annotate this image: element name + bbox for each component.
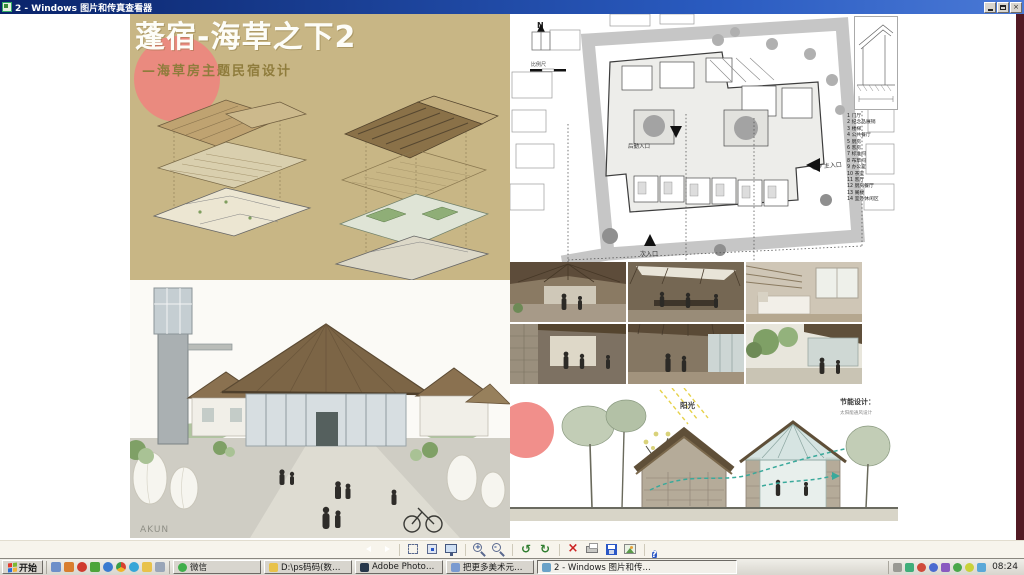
rotate-clockwise-button[interactable]: ↻ <box>538 542 553 557</box>
toolbar-separator <box>644 544 645 556</box>
media-player-icon[interactable] <box>64 562 74 572</box>
slideshow-button[interactable] <box>444 542 459 557</box>
desktop: 2 - Windows 图片和传真查看器 × 蓬宿-海草之下2 —海草房主题民宿… <box>0 0 1024 575</box>
taskbar-task-folder[interactable]: D:\ps码码(数学)\学生... <box>264 560 352 574</box>
qq-icon[interactable] <box>77 562 87 572</box>
document-icon <box>451 563 460 572</box>
taskbar-task-photoshop[interactable]: Adobe Photoshop <box>355 560 443 574</box>
image-viewer-icon <box>542 563 551 572</box>
previous-image-button[interactable] <box>359 542 374 557</box>
edit-button[interactable] <box>623 542 638 557</box>
notes-icon[interactable] <box>155 562 165 572</box>
minimize-button[interactable] <box>984 2 996 13</box>
viewer-toolbar: + - ↺ ↻ × ? <box>0 540 1024 558</box>
printer-icon[interactable] <box>893 563 902 572</box>
viewer-canvas: 蓬宿-海草之下2 —海草房主题民宿设计 <box>0 14 1024 540</box>
taskbar-clock[interactable]: 08:24 <box>989 562 1018 572</box>
save-button[interactable] <box>604 542 619 557</box>
taskbar-task-wechat[interactable]: 微信 <box>173 560 261 574</box>
taskbar-task-image-viewer[interactable]: 2 - Windows 图片和传... <box>537 560 737 574</box>
corridor-render <box>628 324 744 384</box>
zoom-out-button[interactable]: - <box>491 542 506 557</box>
browser-icon[interactable] <box>103 562 113 572</box>
delete-button[interactable]: × <box>566 542 581 557</box>
interior-render-3 <box>510 324 626 384</box>
window-titlebar[interactable]: 2 - Windows 图片和传真查看器 × <box>0 0 1024 14</box>
volume-icon[interactable] <box>953 563 962 572</box>
energy-elevation: 阳光 节能设计： 太阳能通风设计 <box>510 388 898 538</box>
toolbar-separator <box>399 544 400 556</box>
bedroom-render <box>746 262 862 322</box>
interior-render-1 <box>510 262 626 322</box>
axonometric-diagrams <box>130 84 510 280</box>
app-icon <box>2 2 12 12</box>
energy-title: 节能设计： <box>840 397 875 406</box>
legend-item: 14 室外休闲区 <box>847 197 897 203</box>
poster-left-panel: 蓬宿-海草之下2 —海草房主题民宿设计 <box>130 14 510 538</box>
courtyard-render <box>746 324 862 384</box>
restore-button[interactable] <box>997 2 1009 13</box>
poster-right-panel: 主入口 次入口 后勤入口 N 比例尺 <box>510 14 898 538</box>
render-watermark: AKUN <box>140 525 169 535</box>
poster-title: 蓬宿-海草之下2 <box>135 14 356 56</box>
window-title: 2 - Windows 图片和传真查看器 <box>15 1 152 14</box>
entrance-secondary-label: 次入口 <box>640 250 658 258</box>
interior-render-2 <box>628 262 744 322</box>
taskbar: 开始 微信 D:\ps码码(数学)\学生... Adobe P <box>0 558 1024 575</box>
sun-label: 阳光 <box>680 400 695 410</box>
toolbar-separator <box>465 544 466 556</box>
entrance-service-label: 后勤入口 <box>628 142 650 150</box>
photoshop-icon <box>360 563 369 572</box>
image-edge-strip <box>1016 14 1024 540</box>
system-tray: 08:24 <box>888 561 1022 574</box>
chrome-icon[interactable] <box>116 562 126 572</box>
folder-icon[interactable] <box>142 562 152 572</box>
print-button[interactable] <box>585 542 600 557</box>
start-label: 开始 <box>19 561 37 574</box>
im-tray-icon[interactable] <box>941 563 950 572</box>
poster-subtitle: —海草房主题民宿设计 <box>142 60 292 79</box>
zoom-in-button[interactable]: + <box>472 542 487 557</box>
network-icon[interactable] <box>917 563 926 572</box>
start-button[interactable]: 开始 <box>2 560 43 574</box>
show-desktop-icon[interactable] <box>51 562 61 572</box>
qq-tray-icon[interactable] <box>929 563 938 572</box>
site-plan: 主入口 次入口 后勤入口 N 比例尺 <box>510 14 898 262</box>
windows-logo-icon <box>8 562 17 572</box>
section-detail-drawing <box>854 16 898 110</box>
perspective-render: AKUN <box>130 280 510 538</box>
scale-label: 比例尺 <box>531 61 546 68</box>
safely-remove-icon[interactable] <box>905 563 914 572</box>
antivirus-icon[interactable] <box>965 563 974 572</box>
help-button[interactable]: ? <box>651 542 666 557</box>
poster-image: 蓬宿-海草之下2 —海草房主题民宿设计 <box>130 14 898 538</box>
actual-size-button[interactable] <box>425 542 440 557</box>
skype-icon[interactable] <box>129 562 139 572</box>
msn-icon[interactable] <box>90 562 100 572</box>
toolbar-separator <box>512 544 513 556</box>
plan-legend: 1 门厅 2 纪念品展销 3 楼梯 4 公共餐厅 5 厨房 6 客房 7 标准间… <box>847 114 897 204</box>
taskbar-tasks: 微信 D:\ps码码(数学)\学生... Adobe Photoshop 把更多… <box>173 560 885 574</box>
energy-subtitle: 太阳能通风设计 <box>840 409 873 416</box>
folder-icon <box>269 563 278 572</box>
render-photo-grid <box>510 262 864 386</box>
taskbar-task-document[interactable]: 把更多美术元素(自动... <box>446 560 534 574</box>
quick-launch-bar <box>46 561 170 574</box>
wechat-icon <box>178 563 187 572</box>
toolbar-separator <box>559 544 560 556</box>
close-button[interactable]: × <box>1010 2 1022 13</box>
entrance-main-label: 主入口 <box>823 160 842 170</box>
next-image-button[interactable] <box>378 542 393 557</box>
best-fit-button[interactable] <box>406 542 421 557</box>
input-method-icon[interactable] <box>977 563 986 572</box>
rotate-counterclockwise-button[interactable]: ↺ <box>519 542 534 557</box>
